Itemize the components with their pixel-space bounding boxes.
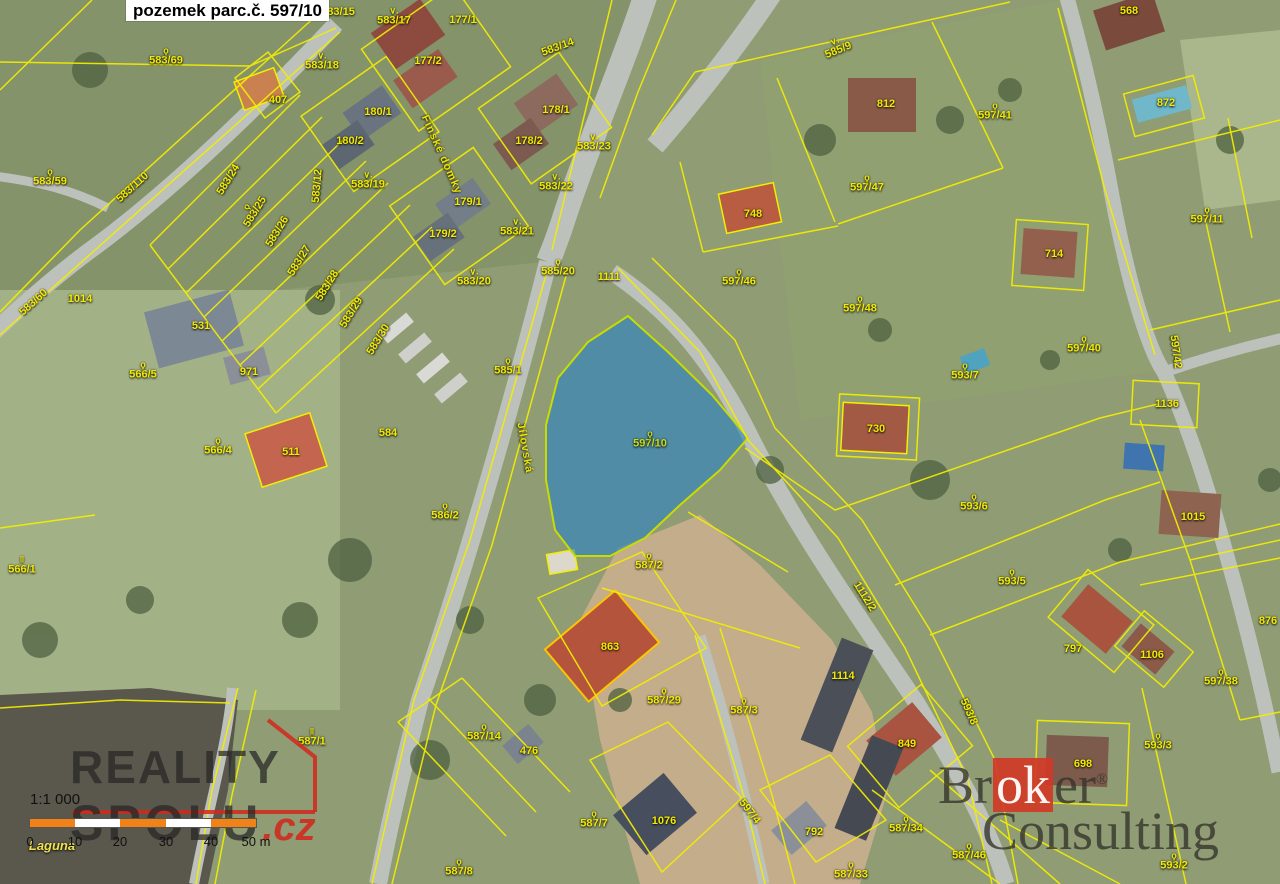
- parcel-label: ϙ593/3: [1144, 732, 1172, 753]
- parcel-label: ϙ587/34: [889, 815, 923, 836]
- label-text: 583/27: [286, 244, 314, 279]
- landuse-symbol-icon: ∨.: [317, 52, 326, 61]
- landuse-symbol-icon: ‖: [20, 556, 24, 565]
- landuse-symbol-icon: ϙ: [848, 861, 854, 870]
- parcel-label: ϙ583/59: [33, 168, 67, 189]
- broker-watermark-line2: Consulting: [982, 804, 1219, 858]
- parcel-label: ϙ587/33: [834, 861, 868, 882]
- parcel-label: 583/12: [311, 169, 325, 204]
- scale-bar-segment: [30, 819, 75, 827]
- parcel-label: 1076: [652, 816, 676, 828]
- parcel-label: 792: [805, 827, 823, 839]
- street-name-label: Jílovská: [514, 422, 534, 475]
- landuse-symbol-icon: ϙ: [555, 258, 561, 267]
- label-text: 1076: [652, 816, 676, 828]
- parcel-label: ϙ587/3: [730, 697, 758, 718]
- parcel-label: ϙ597/10: [633, 430, 667, 451]
- parcel-label: 568: [1120, 6, 1138, 18]
- label-text: 1106: [1140, 650, 1164, 662]
- parcel-label: 714: [1045, 249, 1063, 261]
- landuse-symbol-icon: ϙ: [864, 174, 870, 183]
- scale-tick-labels: 01020304050 m: [30, 834, 290, 850]
- label-text: 849: [898, 739, 916, 751]
- parcel-label: 748: [744, 209, 762, 221]
- parcel-label: 511: [282, 447, 300, 459]
- landuse-symbol-icon: ϙ: [163, 47, 169, 56]
- label-text: 511: [282, 447, 300, 459]
- parcel-label: 179/1: [454, 197, 482, 209]
- label-text: 178/1: [542, 105, 570, 117]
- label-text: 593/5: [998, 577, 1026, 589]
- parcel-label: 583/26: [264, 215, 292, 250]
- scale-ratio: 1:1 000: [30, 792, 290, 808]
- label-text: 1136: [1155, 399, 1179, 411]
- scale-bar: [30, 819, 256, 827]
- landuse-symbol-icon: ϙ: [1081, 335, 1087, 344]
- label-text: 593/2: [1160, 861, 1188, 873]
- parcel-label: 583/30: [365, 323, 393, 358]
- landuse-symbol-icon: ϙ: [857, 295, 863, 304]
- label-text: 583/25: [242, 195, 270, 230]
- label-text: 583/30: [365, 323, 393, 358]
- landuse-symbol-icon: ϙ: [481, 723, 487, 732]
- parcel-label: 730: [867, 424, 885, 436]
- parcel-label: ϙ597/38: [1204, 668, 1238, 689]
- scale-tick-label: 20: [113, 834, 127, 849]
- landuse-symbol-icon: ϙ: [505, 357, 511, 366]
- landuse-symbol-icon: ϙ: [736, 268, 742, 277]
- parcel-label: 177/2: [414, 56, 442, 68]
- label-text: 476: [520, 746, 538, 758]
- label-text: 583/59: [33, 177, 67, 189]
- label-text: 812: [877, 99, 895, 111]
- label-text: 587/33: [834, 870, 868, 882]
- label-text: 1014: [68, 294, 92, 306]
- label-text: 876: [1259, 616, 1277, 628]
- label-text: 587/2: [635, 561, 663, 573]
- landuse-symbol-icon: ϙ: [591, 810, 597, 819]
- label-text: 583/23: [577, 142, 611, 154]
- label-text: 583/29: [338, 296, 366, 331]
- label-text: 587/3: [730, 706, 758, 718]
- label-text: 568: [1120, 6, 1138, 18]
- parcel-label: ∨.583/21: [500, 218, 534, 239]
- label-text: 597/42: [1167, 335, 1183, 370]
- label-text: 583/22: [539, 182, 573, 194]
- parcel-label: ϙ587/29: [647, 687, 681, 708]
- parcel-label: ∨.583/23: [577, 133, 611, 154]
- parcel-label: 180/2: [336, 136, 364, 148]
- broker-consulting-watermark: Broker® Consulting: [938, 758, 1219, 858]
- landuse-symbol-icon: ∨.: [363, 171, 372, 180]
- landuse-symbol-icon: ϙ: [47, 168, 53, 177]
- landuse-symbol-icon: ϙ: [442, 502, 448, 511]
- cadastral-aerial-map: ϙ583/69ϙ583/59583/110583/60407583/24ϙ583…: [0, 0, 1280, 884]
- map-title: pozemek parc.č. 597/10: [126, 0, 329, 21]
- parcel-label: 407: [269, 95, 287, 107]
- label-text: 597/40: [1067, 344, 1101, 356]
- parcel-label: ϙ593/5: [998, 568, 1026, 589]
- label-text: 566/1: [8, 565, 36, 577]
- label-text: 593/3: [1144, 741, 1172, 753]
- scale-tick-label: 40: [204, 834, 218, 849]
- parcel-label: 180/1: [364, 107, 392, 119]
- label-text: 597/38: [1204, 677, 1238, 689]
- landuse-symbol-icon: ϙ: [646, 552, 652, 561]
- parcel-label: 583/60: [18, 287, 51, 318]
- parcel-label: 876: [1259, 616, 1277, 628]
- label-text: 1112/2: [851, 580, 878, 614]
- label-text: 531: [192, 321, 210, 333]
- scale-indicator: 1:1 000 01020304050 m: [30, 792, 290, 850]
- label-text: 583/26: [264, 215, 292, 250]
- landuse-symbol-icon: ϙ: [661, 687, 667, 696]
- parcel-label: 583/24: [215, 163, 243, 198]
- parcel-label: ϙ566/5: [129, 361, 157, 382]
- label-text: 797: [1064, 644, 1082, 656]
- scale-tick-label: 10: [68, 834, 82, 849]
- parcel-label: ϙ587/8: [445, 858, 473, 879]
- landuse-symbol-icon: ϙ: [647, 430, 653, 439]
- label-text: 583/24: [215, 163, 243, 198]
- label-text: 180/1: [364, 107, 392, 119]
- landuse-symbol-icon: ϙ: [215, 437, 221, 446]
- landuse-symbol-icon: ϙ: [1009, 568, 1015, 577]
- label-text: 730: [867, 424, 885, 436]
- parcel-label: 971: [240, 367, 258, 379]
- landuse-symbol-icon: ϙ: [741, 697, 747, 706]
- landuse-symbol-icon: ∨.: [512, 218, 521, 227]
- label-text: 583/20: [457, 277, 491, 289]
- parcel-label: 177/1: [449, 15, 477, 27]
- label-text: 583/69: [149, 56, 183, 68]
- landuse-symbol-icon: ∨.: [469, 268, 478, 277]
- landuse-symbol-icon: ∨.: [389, 7, 398, 16]
- landuse-symbol-icon: ϙ: [1218, 668, 1224, 677]
- landuse-symbol-icon: ϙ: [140, 361, 146, 370]
- label-text: 583/60: [18, 287, 51, 318]
- scale-tick-label: 30: [159, 834, 173, 849]
- parcel-label: ϙ585/20: [541, 258, 575, 279]
- label-text: 177/1: [449, 15, 477, 27]
- registered-trademark-icon: ®: [1096, 771, 1108, 788]
- parcel-label: ϙ593/7: [951, 362, 979, 383]
- parcel-label: 812: [877, 99, 895, 111]
- label-text: 714: [1045, 249, 1063, 261]
- parcel-label: ∨.583/18: [305, 52, 339, 73]
- parcel-label: 1014: [68, 294, 92, 306]
- label-text: 586/2: [431, 511, 459, 523]
- parcel-label: 1106: [1140, 650, 1164, 662]
- reality-watermark-line1: REALITY: [70, 744, 281, 790]
- label-text: 748: [744, 209, 762, 221]
- label-text: 597/11: [1190, 215, 1223, 227]
- label-text: 583/110: [115, 171, 152, 206]
- label-text: 597/47: [850, 183, 884, 195]
- label-text: 593/6: [960, 502, 988, 514]
- parcel-label: ∨.585/9: [820, 32, 853, 62]
- label-text: 597/41: [978, 111, 1012, 123]
- scale-bar-segment: [211, 819, 256, 827]
- label-text: 584: [379, 428, 397, 440]
- parcel-label: 584: [379, 428, 397, 440]
- landuse-symbol-icon: ϙ: [962, 362, 968, 371]
- parcel-label: ϙ583/25: [234, 190, 270, 230]
- label-text: 583/21: [500, 227, 534, 239]
- label-text: 583/12: [311, 169, 325, 204]
- label-text: 585/1: [494, 366, 522, 378]
- scale-bar-segment: [75, 819, 120, 827]
- label-text: 597/4: [736, 798, 762, 827]
- parcel-label: 583/27: [286, 244, 314, 279]
- label-text: 597/48: [843, 304, 877, 316]
- parcel-label: ϙ597/48: [843, 295, 877, 316]
- parcel-label: 476: [520, 746, 538, 758]
- label-text: 180/2: [336, 136, 364, 148]
- label-text: 1015: [1181, 512, 1205, 524]
- landuse-symbol-icon: ∨.: [551, 173, 560, 182]
- parcel-label: 583/29: [338, 296, 366, 331]
- parcel-label: 597/42: [1167, 335, 1183, 370]
- label-text: 593/7: [951, 371, 979, 383]
- label-text: 566/5: [129, 370, 157, 382]
- parcel-label: 1111: [598, 272, 621, 284]
- parcel-label: 179/2: [429, 229, 457, 241]
- label-text: 587/14: [467, 732, 501, 744]
- label-text: 566/4: [204, 446, 232, 458]
- parcel-label: 583/28: [314, 269, 342, 304]
- label-text: 583/18: [305, 61, 339, 73]
- parcel-label: ∨.583/22: [539, 173, 573, 194]
- landuse-symbol-icon: ϙ: [971, 493, 977, 502]
- label-text: 597/46: [722, 277, 756, 289]
- parcel-label: ∨.583/19: [351, 171, 385, 192]
- label-text: 872: [1157, 98, 1175, 110]
- parcel-label: 863: [601, 642, 619, 654]
- parcel-label: 872: [1157, 98, 1175, 110]
- scale-bar-segment: [120, 819, 165, 827]
- parcel-label: 178/2: [515, 136, 543, 148]
- parcel-label: 583/14: [540, 37, 576, 59]
- landuse-symbol-icon: ϙ: [456, 858, 462, 867]
- parcel-label: ϙ597/46: [722, 268, 756, 289]
- label-text: 971: [240, 367, 258, 379]
- landuse-symbol-icon: ϙ: [1204, 206, 1210, 215]
- landuse-symbol-icon: ∨.: [589, 133, 598, 142]
- parcel-label: 178/1: [542, 105, 570, 117]
- parcel-label: 1015: [1181, 512, 1205, 524]
- label-text: 587/29: [647, 696, 681, 708]
- label-text: 583/28: [314, 269, 342, 304]
- parcel-label: 597/4: [736, 798, 762, 827]
- street-name-label: Finské domky: [418, 114, 463, 197]
- label-text: 587/34: [889, 824, 923, 836]
- parcel-label: ∨.583/20: [457, 268, 491, 289]
- parcel-label: ϙ597/41: [978, 102, 1012, 123]
- label-text: 178/2: [515, 136, 543, 148]
- label-text: 587/7: [580, 819, 608, 831]
- parcel-label: 1114: [831, 671, 854, 683]
- parcel-label: ϙ585/1: [494, 357, 522, 378]
- parcel-label: ϙ597/11: [1190, 206, 1223, 227]
- label-text: Finské domky: [418, 114, 463, 197]
- parcel-label: ϙ597/40: [1067, 335, 1101, 356]
- label-text: 583/17: [377, 16, 411, 28]
- parcel-label: 593/8: [957, 697, 979, 727]
- parcel-label: ϙ583/69: [149, 47, 183, 68]
- parcel-label: 849: [898, 739, 916, 751]
- label-text: 863: [601, 642, 619, 654]
- label-text: 593/8: [957, 697, 979, 727]
- parcel-label: 531: [192, 321, 210, 333]
- parcel-label: ϙ597/47: [850, 174, 884, 195]
- parcel-label: ϙ566/4: [204, 437, 232, 458]
- scale-tick-label: 50 m: [242, 834, 271, 849]
- label-text: 179/2: [429, 229, 457, 241]
- landuse-symbol-icon: ϙ: [1155, 732, 1161, 741]
- parcel-label: ∨.583/17: [377, 7, 411, 28]
- parcel-label: ϙ593/6: [960, 493, 988, 514]
- label-text: 597/10: [633, 439, 667, 451]
- parcel-label: ϙ587/2: [635, 552, 663, 573]
- label-text: 179/1: [454, 197, 482, 209]
- parcel-label: ϙ587/14: [467, 723, 501, 744]
- label-text: 407: [269, 95, 287, 107]
- landuse-symbol-icon: ϙ: [903, 815, 909, 824]
- parcel-label: 1136: [1155, 399, 1179, 411]
- parcel-label: ‖566/1: [8, 556, 36, 577]
- label-text: 583/19: [351, 180, 385, 192]
- parcel-label: ϙ587/7: [580, 810, 608, 831]
- scale-bar-segment: [166, 819, 211, 827]
- label-text: 587/8: [445, 867, 473, 879]
- parcel-label: 1112/2: [851, 580, 878, 614]
- label-text: 1114: [831, 671, 854, 683]
- parcel-label: 583/110: [115, 171, 152, 206]
- label-text: 1111: [598, 272, 621, 284]
- landuse-symbol-icon: ϙ: [992, 102, 998, 111]
- label-text: 177/2: [414, 56, 442, 68]
- parcel-label: 797: [1064, 644, 1082, 656]
- label-text: 583/14: [540, 37, 576, 59]
- parcel-label: ϙ586/2: [431, 502, 459, 523]
- scale-tick-label: 0: [26, 834, 33, 849]
- label-text: Jílovská: [514, 422, 534, 475]
- label-text: 585/20: [541, 267, 575, 279]
- label-text: 792: [805, 827, 823, 839]
